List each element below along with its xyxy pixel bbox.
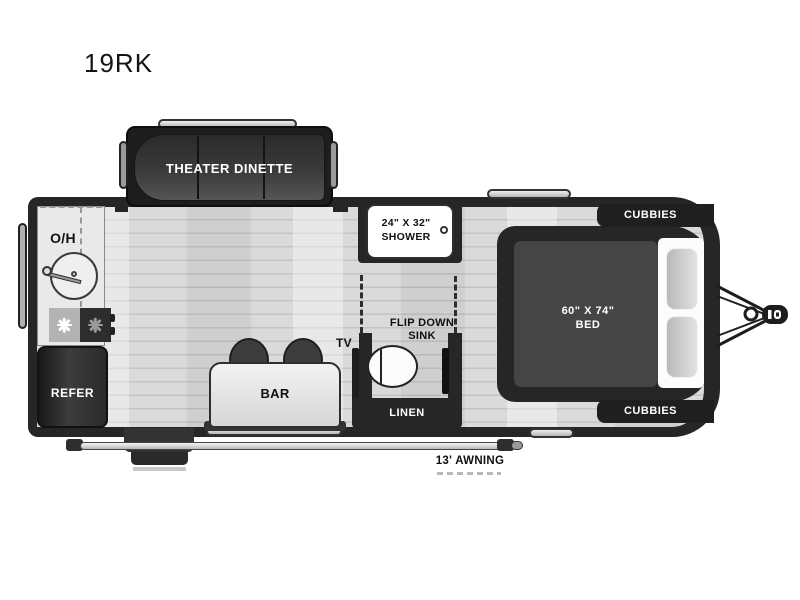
floorplan-page: 19RK THEATER DINETTE O/H REFER xyxy=(0,0,800,600)
tv-label: TV xyxy=(330,336,358,350)
awning-label-shadow xyxy=(437,472,501,475)
model-title: 19RK xyxy=(84,48,153,79)
bar-label: BAR xyxy=(211,386,339,401)
bathroom-door xyxy=(442,348,449,394)
cooktop xyxy=(49,308,80,342)
pillow xyxy=(666,316,698,378)
top-window xyxy=(487,189,571,199)
tongue-jack xyxy=(745,308,757,320)
cubbies-top: CUBBIES xyxy=(597,204,714,227)
bar-counter: BAR xyxy=(209,362,341,428)
slideout-armrest-right xyxy=(329,141,338,189)
pillow xyxy=(666,248,698,310)
sink-faucet-knob xyxy=(42,266,52,276)
awning-bar xyxy=(80,442,505,450)
entry-step xyxy=(131,452,188,465)
awning-label: 13' AWNING xyxy=(424,455,516,467)
bathroom-wall xyxy=(448,333,462,403)
shower-label: SHOWER xyxy=(368,231,444,243)
shower-size-label: 24" X 32" xyxy=(368,217,444,229)
toilet-tank-line xyxy=(380,349,382,384)
entry-step-shadow xyxy=(133,467,186,471)
cubbies-bottom-label: CUBBIES xyxy=(597,405,704,417)
cooktop-knob xyxy=(110,327,115,335)
bed-text-label: BED xyxy=(576,319,601,331)
awning-end-tip xyxy=(511,441,523,450)
bed-label: 60" X 74" BED xyxy=(520,304,656,332)
cooktop xyxy=(80,308,111,342)
theater-dinette-label: THEATER DINETTE xyxy=(134,161,325,176)
overhead-cabinet-outline xyxy=(40,206,102,208)
hitch xyxy=(705,272,797,362)
refrigerator: REFER xyxy=(37,346,108,428)
linen-cabinet: LINEN xyxy=(352,398,462,428)
cubbies-bottom: CUBBIES xyxy=(597,400,714,423)
bed-size-label: 60" X 74" xyxy=(562,305,615,317)
flip-down-sink-label: FLIP DOWN SINK xyxy=(376,317,468,343)
wall-return-right xyxy=(333,197,348,212)
left-window xyxy=(18,223,27,329)
overhead-label: O/H xyxy=(40,230,86,246)
refrigerator-label: REFER xyxy=(39,386,106,400)
cooktop-knob xyxy=(110,314,115,322)
toilet xyxy=(367,345,418,388)
shower-drain xyxy=(440,226,448,234)
cubbies-top-label: CUBBIES xyxy=(597,209,704,221)
slideout-armrest-left xyxy=(119,141,128,189)
sink-drain xyxy=(71,271,77,277)
flip-down-sink-line1: FLIP DOWN xyxy=(390,317,454,329)
flip-down-sink-line2: SINK xyxy=(408,330,435,342)
sliding-door-track xyxy=(360,275,363,333)
bottom-window-right xyxy=(529,428,574,438)
linen-label: LINEN xyxy=(352,407,462,419)
